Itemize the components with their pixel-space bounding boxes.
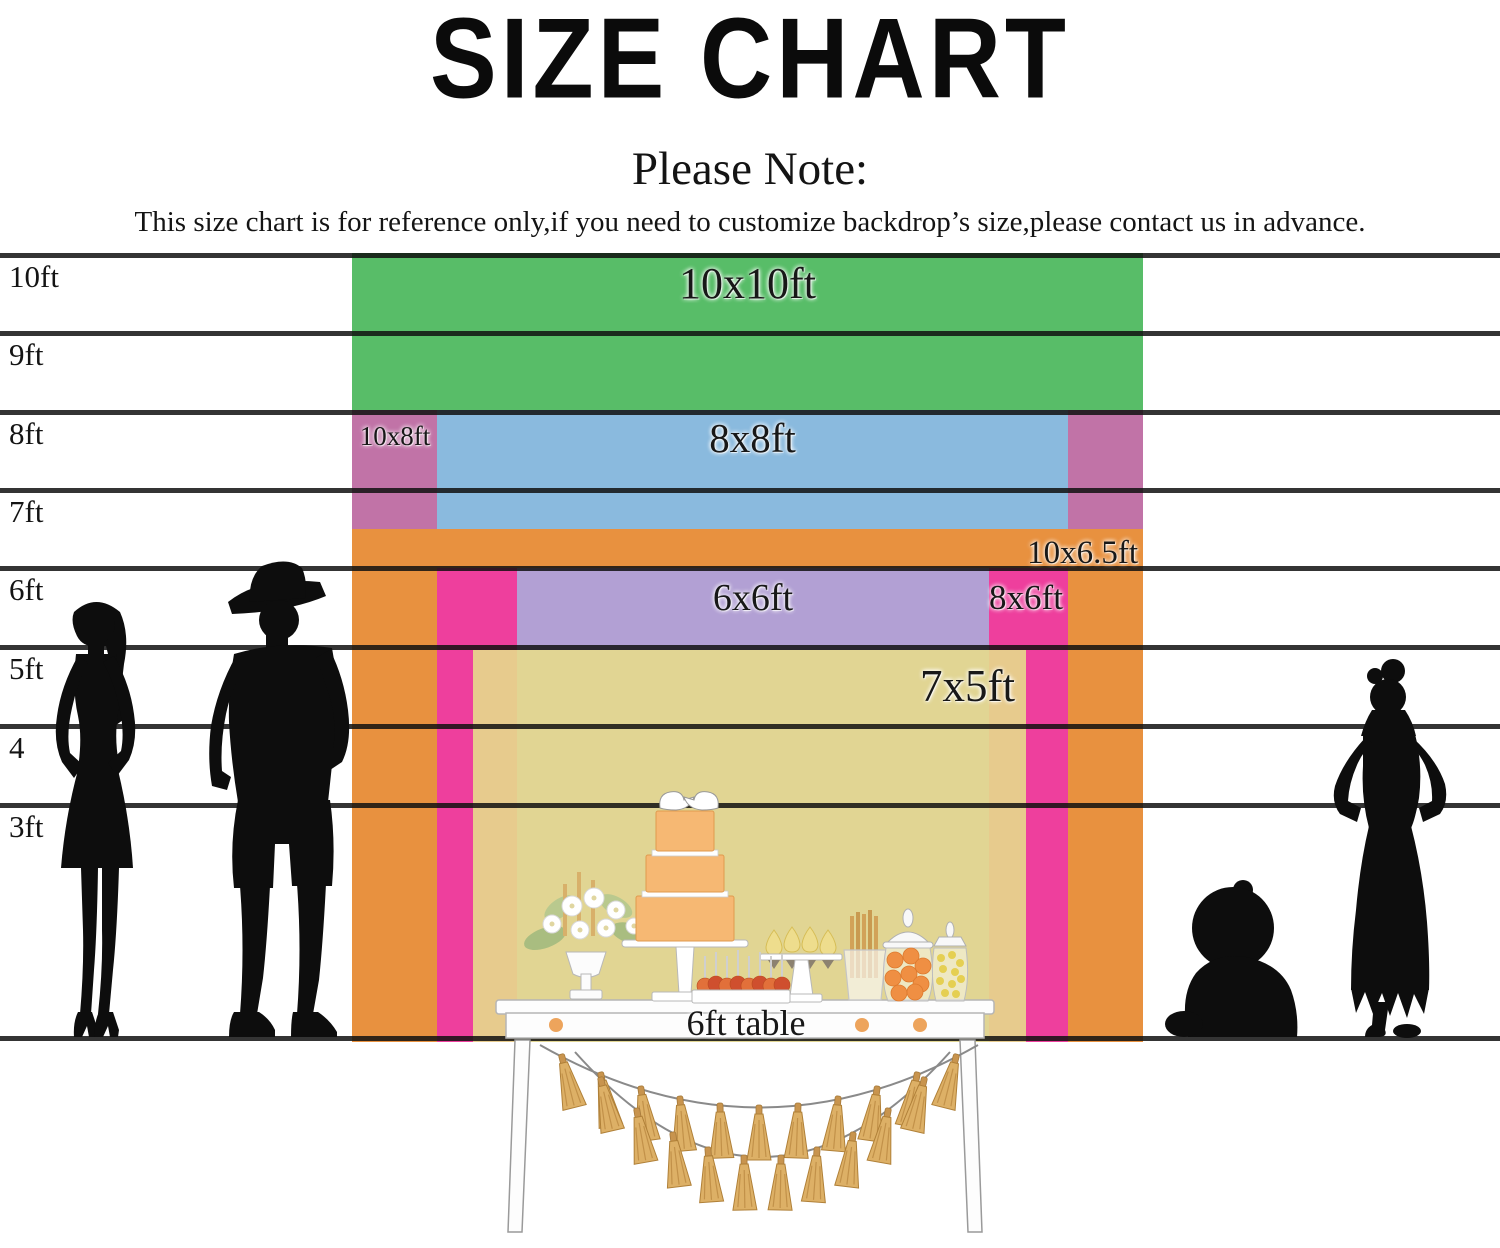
breadstick-cup (844, 910, 886, 1000)
silhouette-woman-right (1334, 659, 1446, 1038)
silhouette-man-left (209, 561, 349, 1037)
table-size-label: 6ft table (596, 1002, 896, 1044)
silhouette-woman-left (56, 602, 135, 1037)
tassel-garland (540, 1045, 978, 1210)
table-leg (960, 1040, 982, 1232)
candy-jar-yellow (932, 922, 967, 1001)
candy-jar-orange (883, 909, 933, 1001)
note-heading: Please Note: (0, 142, 1500, 196)
page-title: SIZE CHART (0, 0, 1500, 125)
garland-pin (549, 1018, 563, 1032)
bird-icon (660, 792, 719, 810)
wedding-cake (622, 792, 748, 1001)
silhouette-toddler (1165, 880, 1297, 1037)
table-leg (508, 1040, 530, 1232)
size-chart-infographic: SIZE CHART Please Note: This size chart … (0, 0, 1500, 1248)
garland-pin (913, 1018, 927, 1032)
note-body: This size chart is for reference only,if… (0, 206, 1500, 239)
